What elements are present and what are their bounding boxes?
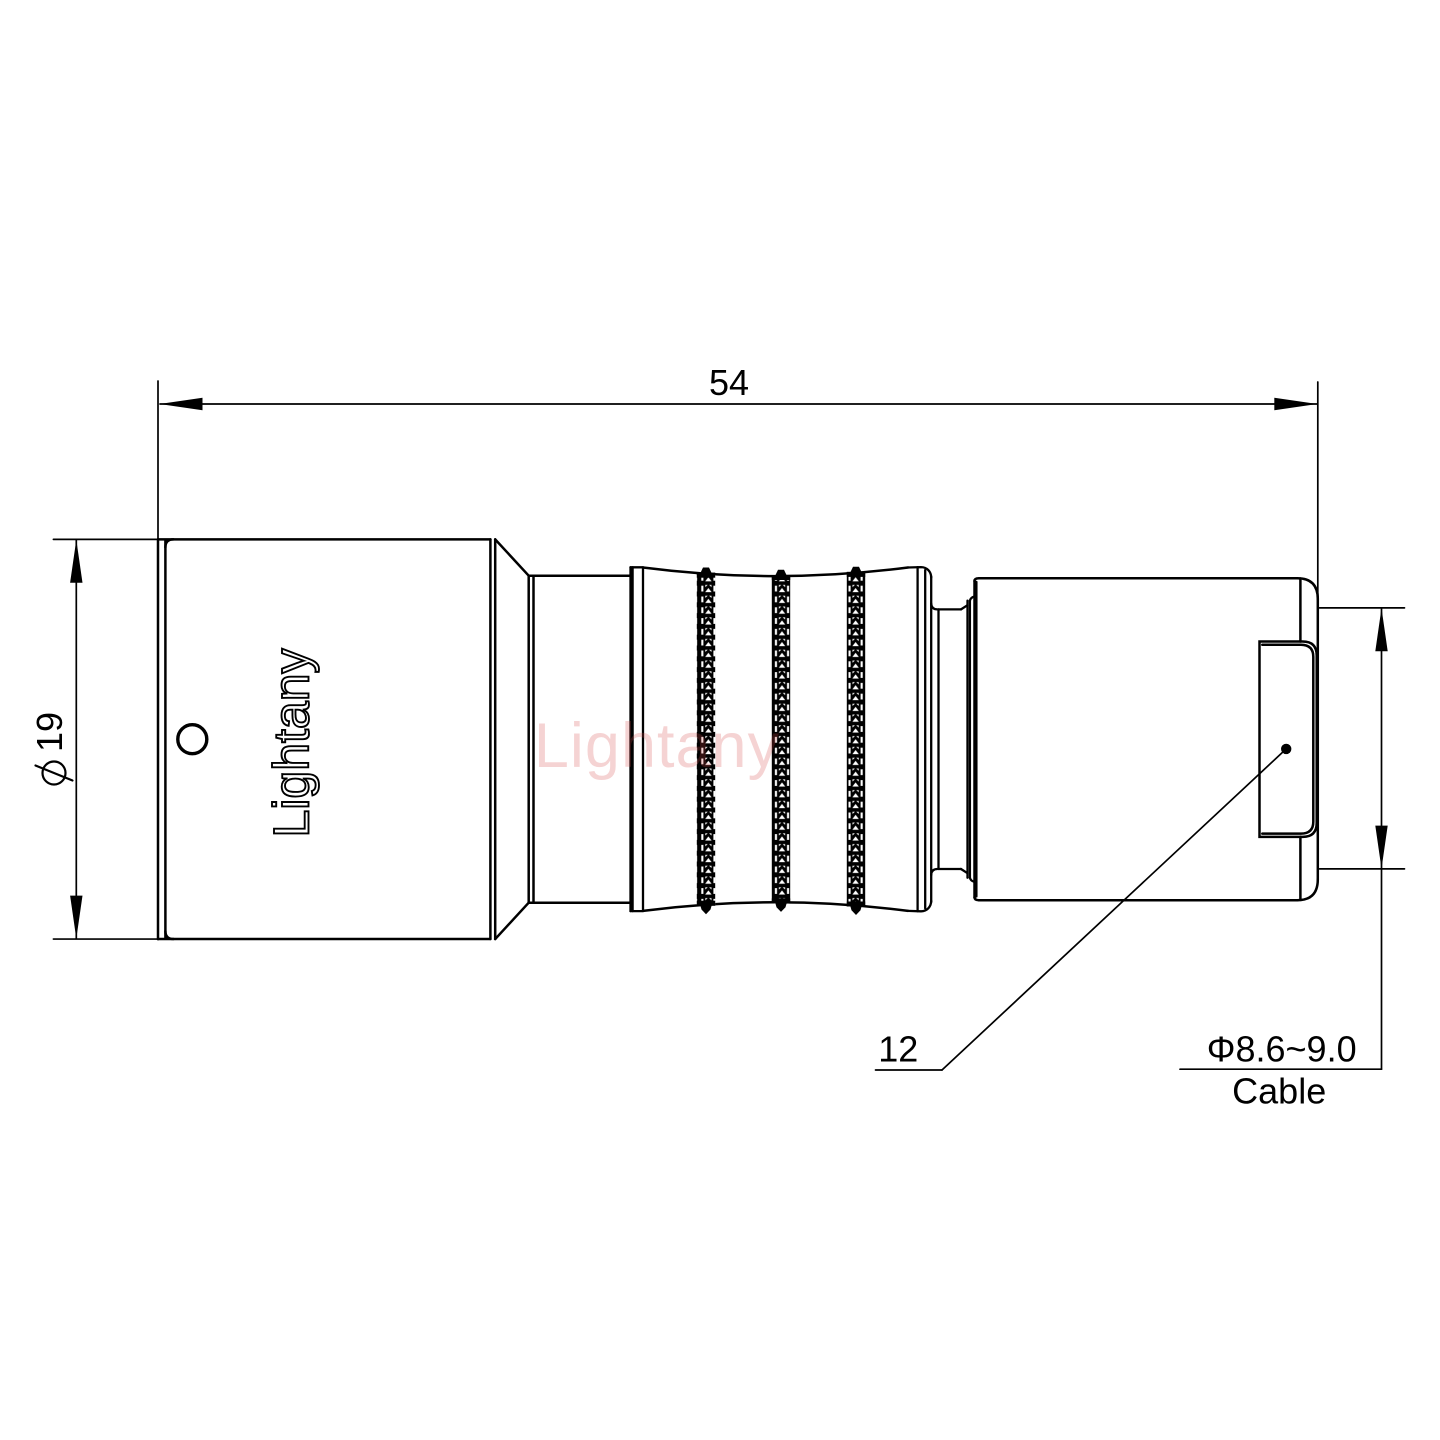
svg-text:54: 54: [709, 362, 749, 403]
svg-text:Lightany: Lightany: [534, 711, 780, 781]
svg-text:12: 12: [878, 1029, 918, 1070]
svg-text:Cable: Cable: [1232, 1070, 1326, 1111]
svg-text:19: 19: [29, 712, 70, 752]
svg-text:Lightany: Lightany: [264, 648, 320, 837]
svg-text:Φ8.6~9.0: Φ8.6~9.0: [1207, 1029, 1357, 1070]
